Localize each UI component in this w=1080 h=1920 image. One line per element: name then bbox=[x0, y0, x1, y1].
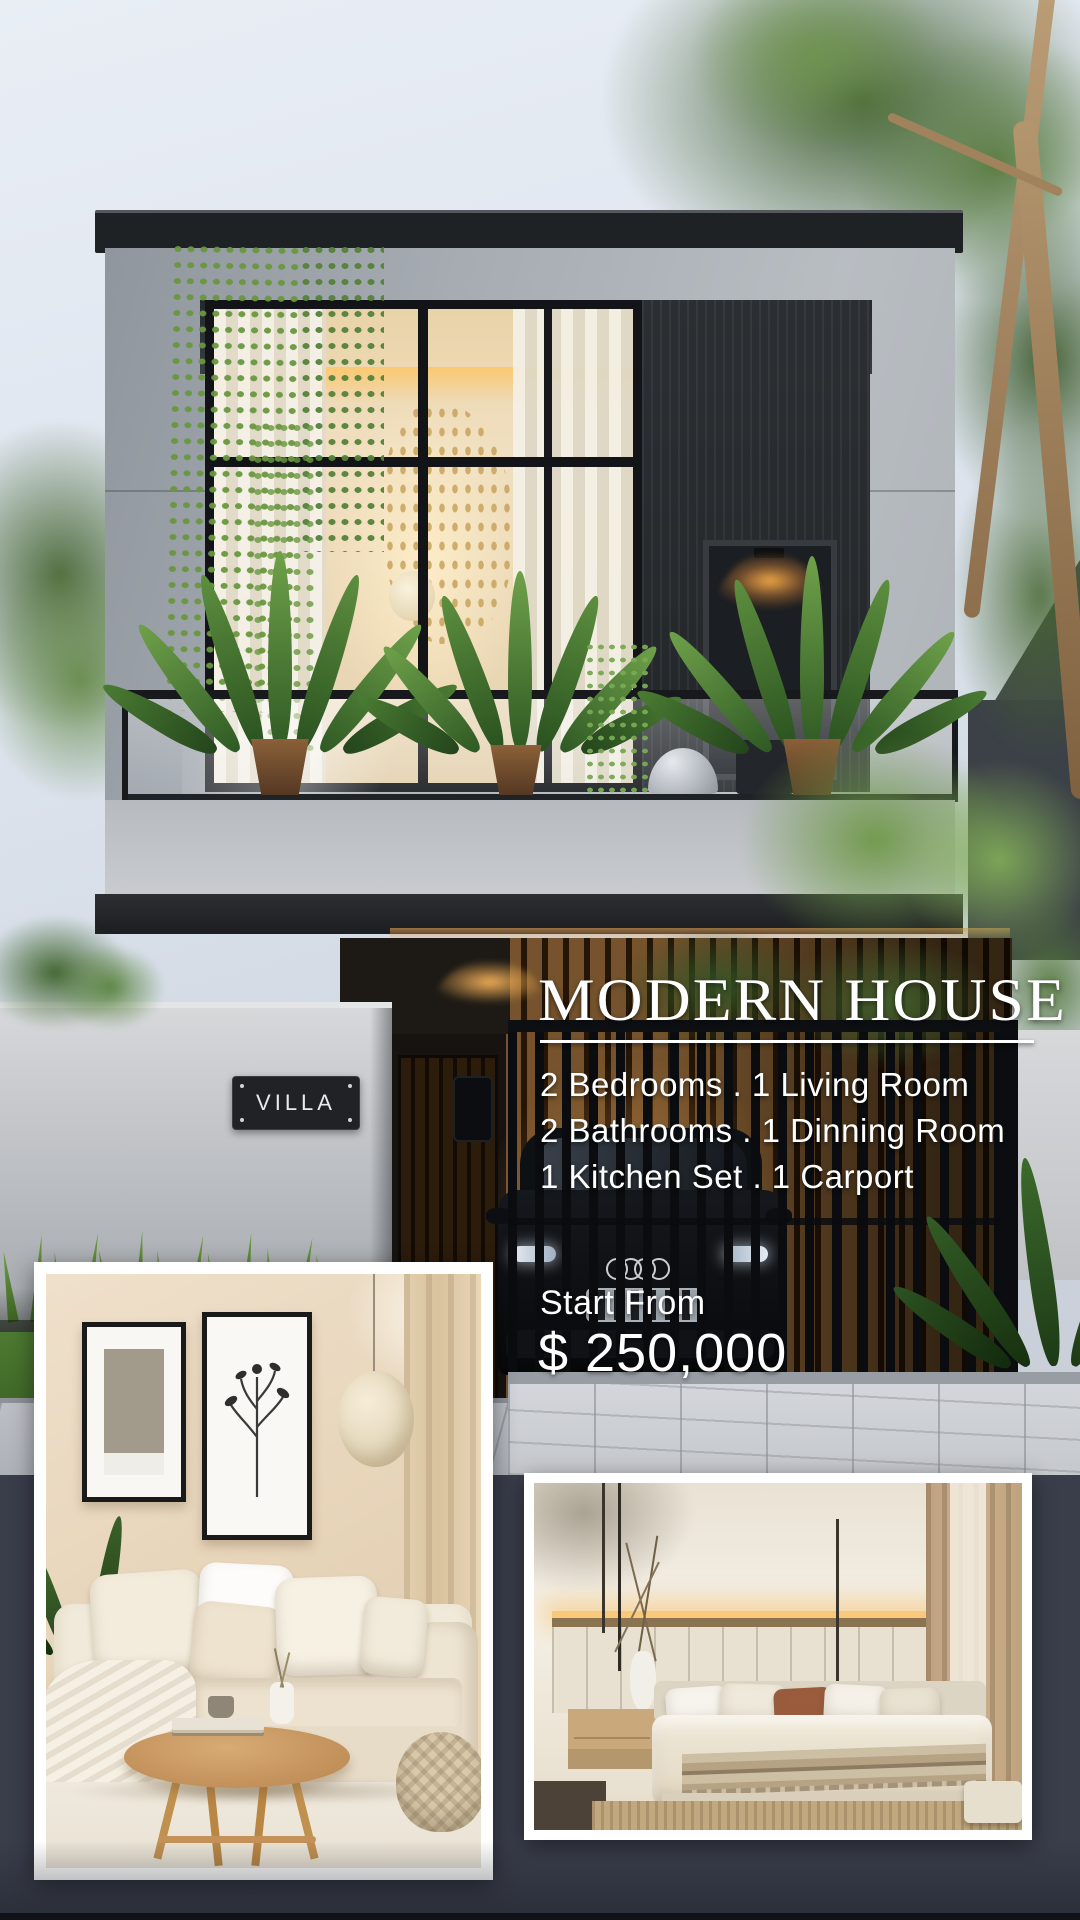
headboard-rail bbox=[552, 1618, 944, 1627]
feature-line: 2 Bathrooms . 1 Dinning Room bbox=[540, 1108, 1070, 1154]
frame-art bbox=[104, 1349, 164, 1453]
feature-line: 2 Bedrooms . 1 Living Room bbox=[540, 1062, 1070, 1108]
frame-art-strip bbox=[104, 1453, 164, 1475]
plant-frond bbox=[1063, 1190, 1080, 1371]
botanical-art-icon bbox=[207, 1317, 307, 1535]
lamp-cord bbox=[373, 1274, 375, 1374]
grass-blade bbox=[0, 1250, 19, 1323]
driveway-pavers bbox=[508, 1384, 1080, 1475]
hedge bbox=[55, 945, 165, 1030]
feature-line: 1 Kitchen Set . 1 Carport bbox=[540, 1154, 1070, 1200]
villa-plaque: VILLA bbox=[232, 1076, 360, 1130]
mug bbox=[208, 1696, 234, 1718]
vase bbox=[270, 1682, 294, 1724]
led-cove-light bbox=[552, 1611, 944, 1618]
bottom-vignette bbox=[0, 1840, 1080, 1920]
plant-frond bbox=[800, 556, 824, 751]
house-photo: VILLA bbox=[0, 0, 1080, 1475]
pouf bbox=[396, 1732, 481, 1832]
pendant-lamp bbox=[338, 1371, 414, 1467]
inset-living-room bbox=[34, 1262, 493, 1880]
area-rug bbox=[592, 1801, 1022, 1830]
wall-frame bbox=[202, 1312, 312, 1540]
feature-list: 2 Bedrooms . 1 Living Room 2 Bathrooms .… bbox=[540, 1062, 1070, 1200]
inset-bedroom bbox=[524, 1473, 1032, 1840]
bedroom-photo bbox=[534, 1483, 1022, 1830]
branch-vase bbox=[630, 1651, 656, 1711]
wall-frame bbox=[82, 1322, 186, 1502]
price-value: $ 250,000 bbox=[538, 1322, 787, 1384]
books-stack bbox=[172, 1718, 264, 1730]
page-title: MODERN HOUSE bbox=[538, 966, 1067, 1035]
sofa-pillow bbox=[359, 1595, 430, 1678]
poster: VILLA MODERN HOUSE 2 Bedr bbox=[0, 0, 1080, 1920]
plant-pot bbox=[244, 739, 316, 795]
drawer-line bbox=[574, 1737, 650, 1739]
intercom-panel bbox=[455, 1078, 491, 1140]
hanging-fern bbox=[585, 640, 651, 800]
plant-pot bbox=[484, 745, 548, 795]
living-room-photo bbox=[46, 1274, 481, 1868]
pendant-light-rod bbox=[602, 1483, 605, 1633]
title-underline bbox=[540, 1040, 1034, 1043]
plant-frond bbox=[508, 571, 532, 751]
balcony-plant bbox=[170, 555, 390, 795]
table-top bbox=[124, 1726, 350, 1788]
plant-frond bbox=[268, 551, 292, 751]
nightstand bbox=[568, 1709, 656, 1769]
villa-plaque-text: VILLA bbox=[233, 1077, 359, 1129]
bench-ottoman bbox=[964, 1781, 1022, 1823]
price-label: Start From bbox=[540, 1284, 706, 1323]
bottom-edge-line bbox=[0, 1913, 1080, 1920]
